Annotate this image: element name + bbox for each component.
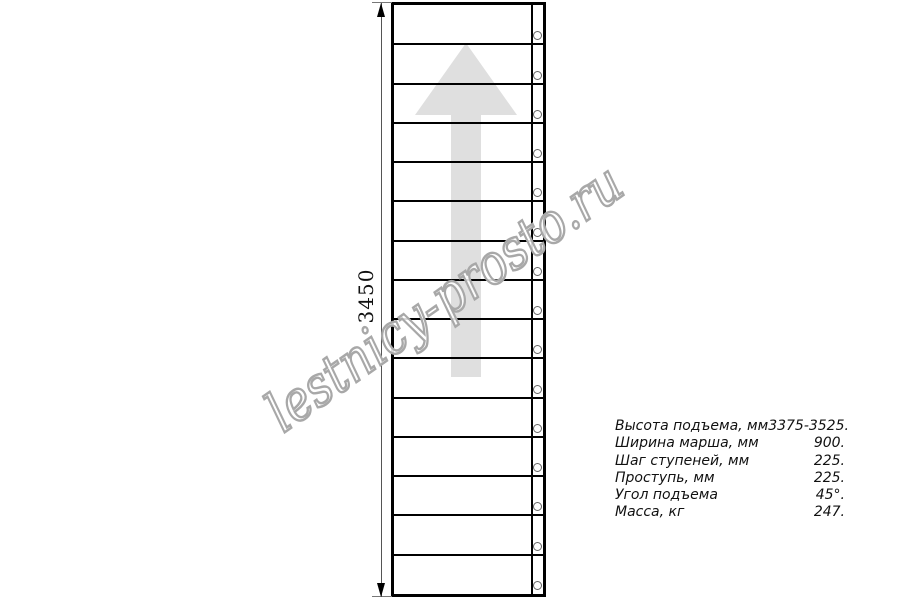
spec-row: Ширина марша, мм900.: [615, 435, 845, 452]
bolt-circle: [533, 385, 542, 394]
bolt-circle: [533, 149, 542, 158]
spec-label: Масса, кг: [615, 504, 684, 521]
spec-table: Высота подъема, мм3375-3525.Ширина марша…: [615, 418, 845, 522]
spec-row: Масса, кг247.: [615, 504, 845, 521]
bolt-circle: [533, 463, 542, 472]
spec-label: Высота подъема, мм: [615, 418, 768, 435]
bolt-circle: [533, 502, 542, 511]
dimension-arrow-down-icon: [377, 583, 385, 597]
spec-value: 225.: [814, 470, 845, 487]
spec-row: Проступь, мм225.: [615, 470, 845, 487]
bolt-circle: [533, 267, 542, 276]
spec-row: Высота подъема, мм3375-3525.: [615, 418, 845, 435]
bolt-circle: [533, 31, 542, 40]
spec-row: Шаг ступеней, мм225.: [615, 453, 845, 470]
spec-label: Проступь, мм: [615, 470, 715, 487]
bolt-circle: [533, 71, 542, 80]
spec-label: Ширина марша, мм: [615, 435, 759, 452]
spec-label: Шаг ступеней, мм: [615, 453, 749, 470]
dimension-label: 3450: [354, 269, 378, 324]
spec-value: 45°.: [816, 487, 845, 504]
bolt-circle: [533, 581, 542, 590]
spec-value: 247.: [814, 504, 845, 521]
spec-value: 225.: [814, 453, 845, 470]
bolt-circle: [533, 542, 542, 551]
bolt-circle: [533, 345, 542, 354]
spec-value: 900.: [814, 435, 845, 452]
dimension-arrow-up-icon: [377, 3, 385, 17]
drawing-canvas: 3450 Высота подъема, мм3375-3525.Ширина …: [0, 0, 900, 600]
staircase-plan: [391, 2, 546, 597]
bolt-circle: [533, 188, 542, 197]
bolt-circle: [533, 228, 542, 237]
spec-value: 3375-3525.: [768, 418, 849, 435]
spec-row: Угол подъема45°.: [615, 487, 845, 504]
bolt-circle: [533, 110, 542, 119]
stair-bolts: [394, 5, 543, 594]
dimension-line: [381, 3, 382, 597]
bolt-circle: [533, 424, 542, 433]
bolt-circle: [533, 306, 542, 315]
spec-label: Угол подъема: [615, 487, 718, 504]
